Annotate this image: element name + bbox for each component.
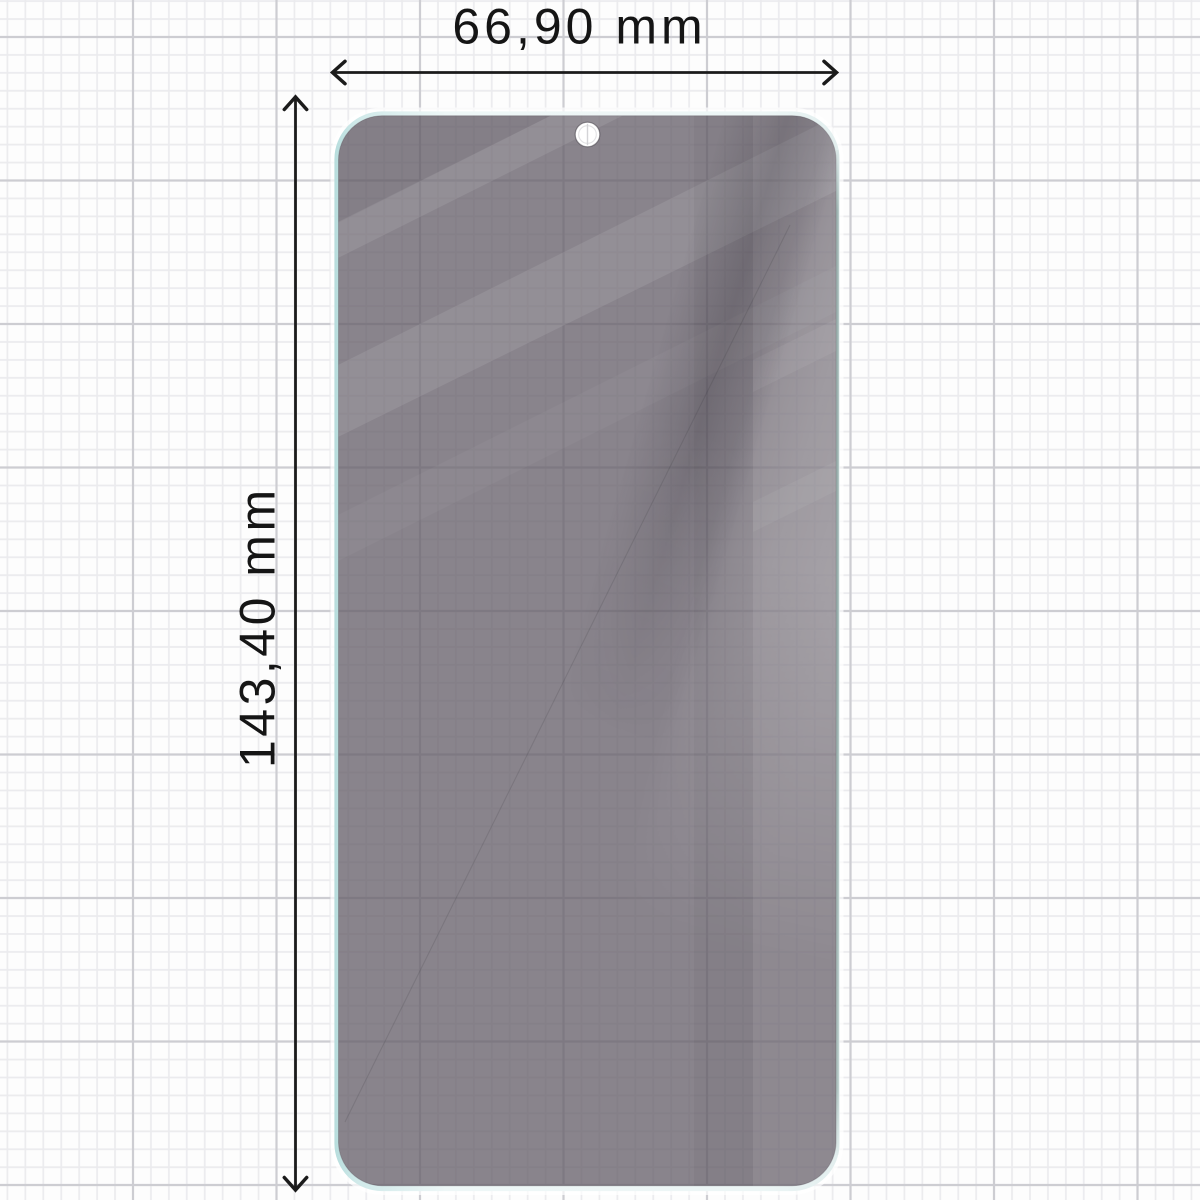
- svg-text:143,40 mm: 143,40 mm: [230, 486, 286, 768]
- svg-text:66,90 mm: 66,90 mm: [452, 0, 706, 55]
